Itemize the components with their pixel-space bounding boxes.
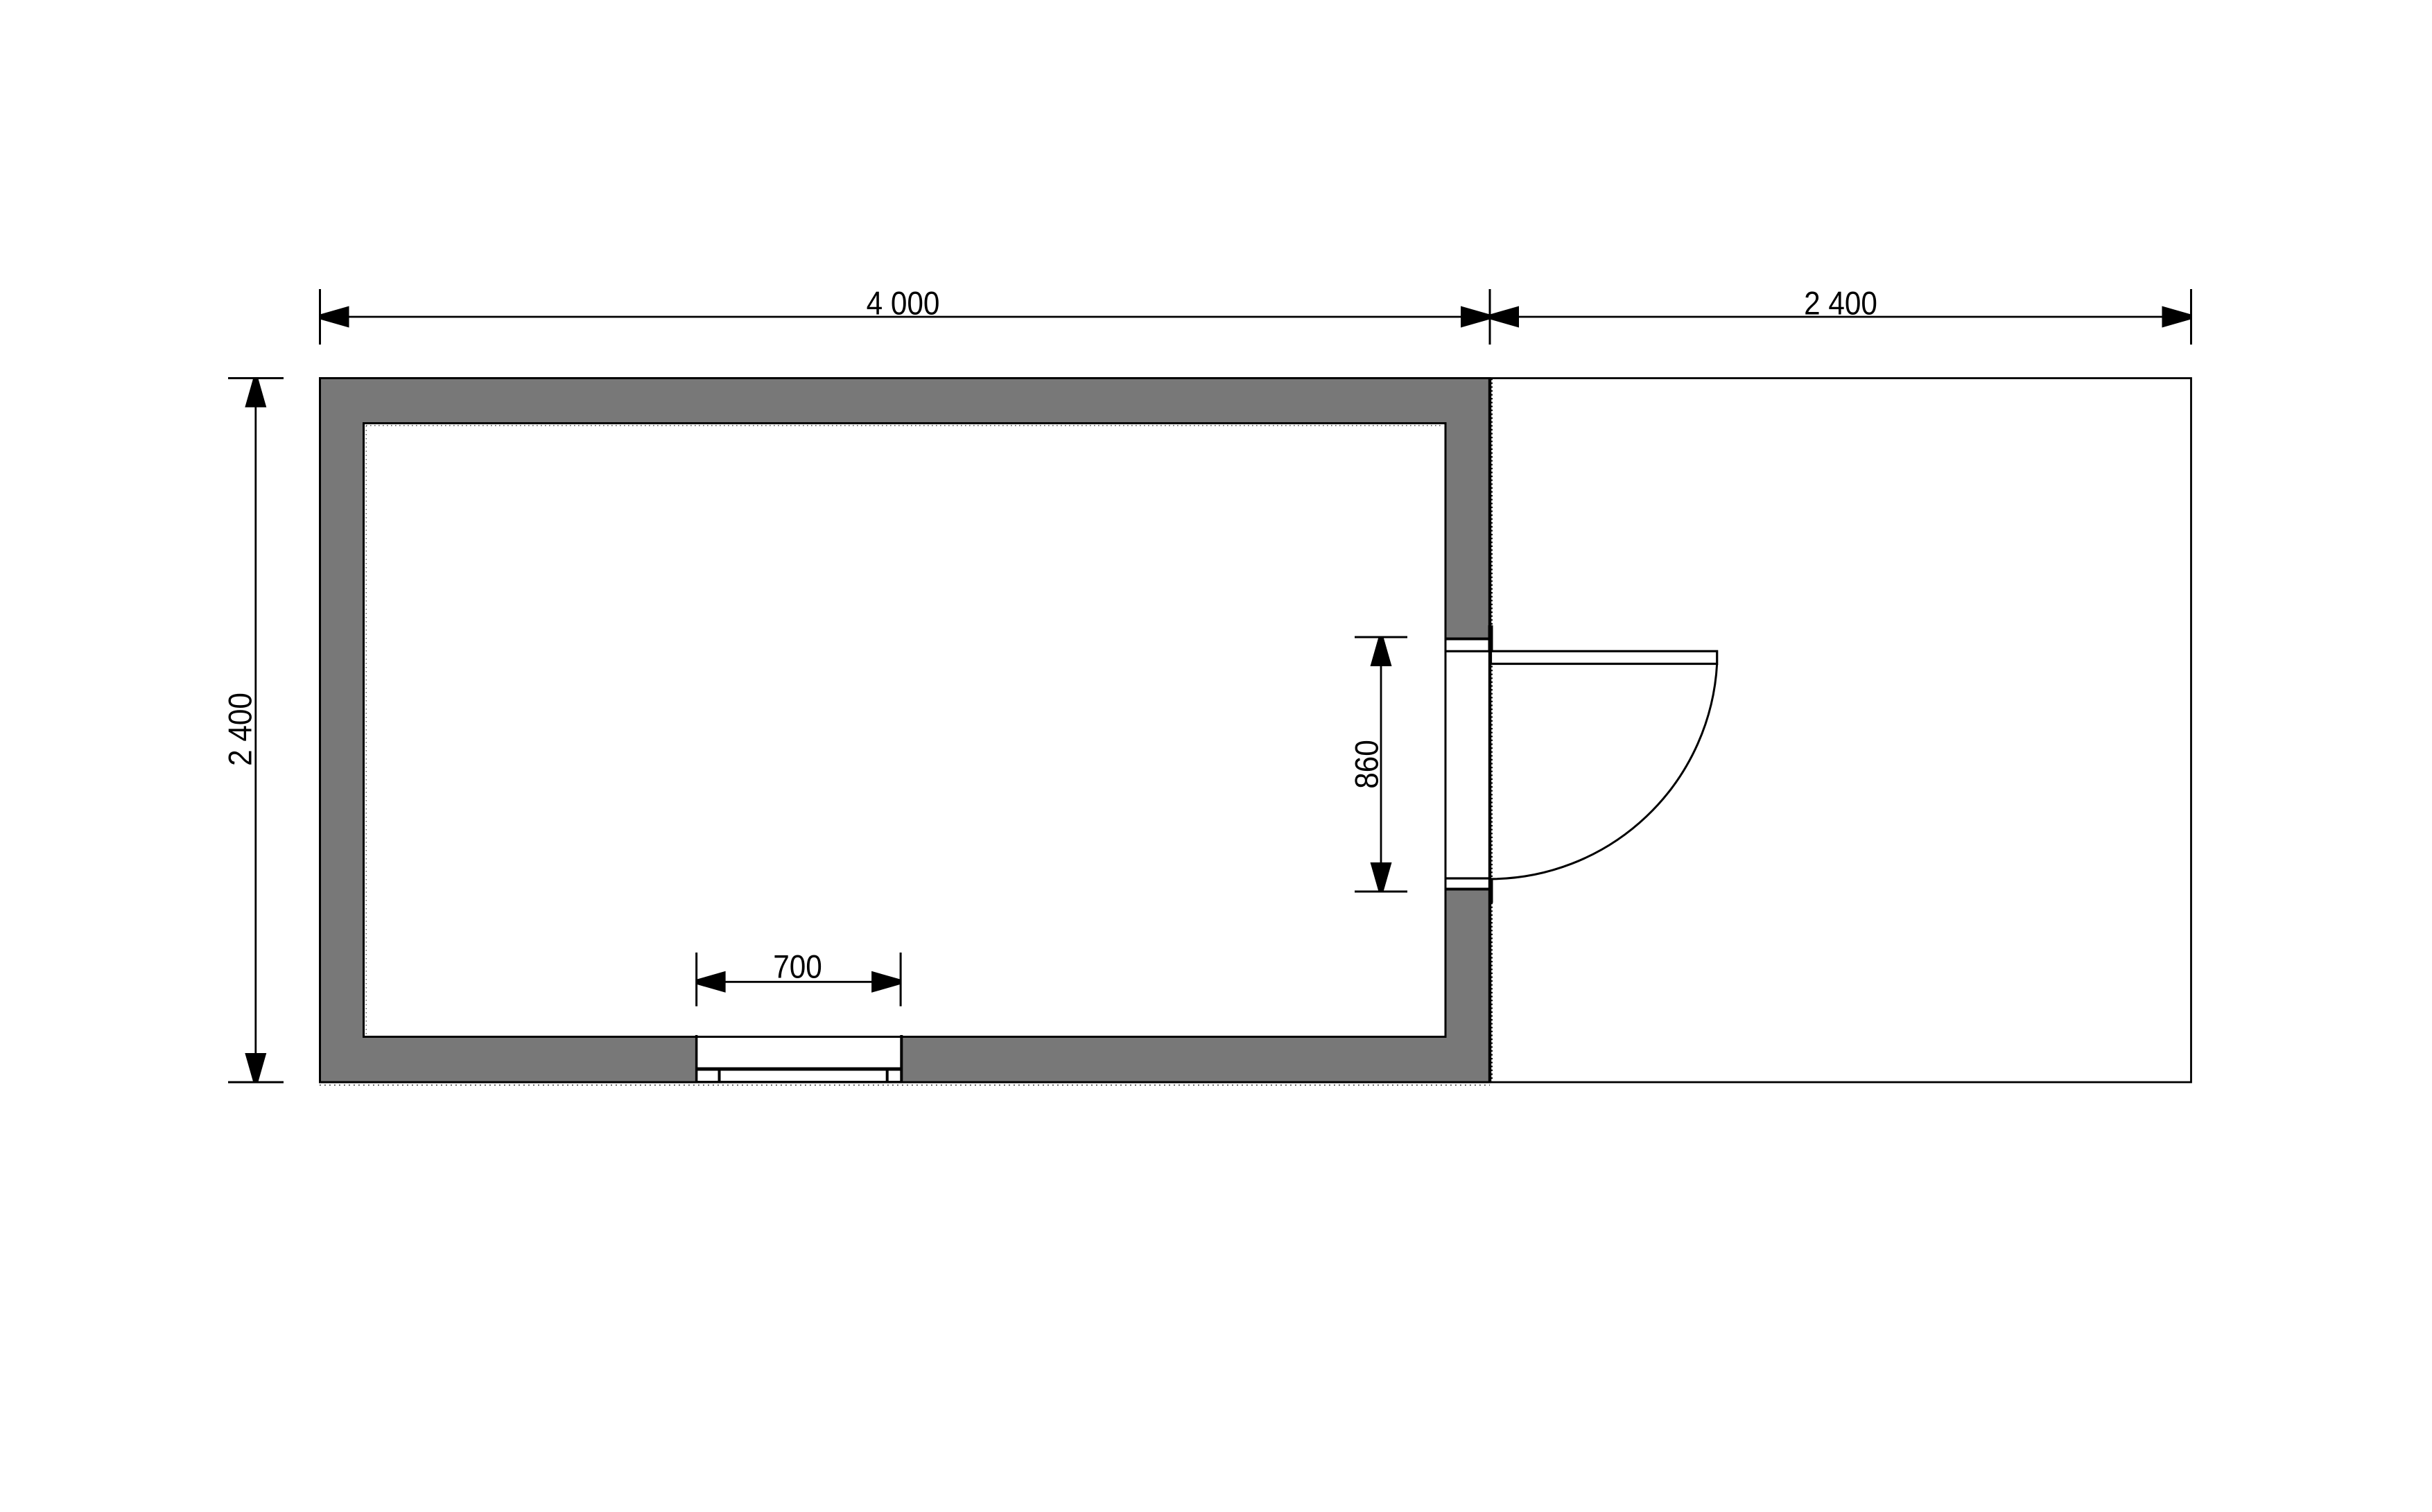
svg-text:2 400: 2 400 bbox=[1804, 286, 1877, 322]
svg-text:4 000: 4 000 bbox=[867, 286, 940, 322]
svg-text:860: 860 bbox=[1350, 740, 1386, 789]
svg-text:700: 700 bbox=[773, 950, 822, 986]
svg-text:2 400: 2 400 bbox=[223, 693, 259, 766]
